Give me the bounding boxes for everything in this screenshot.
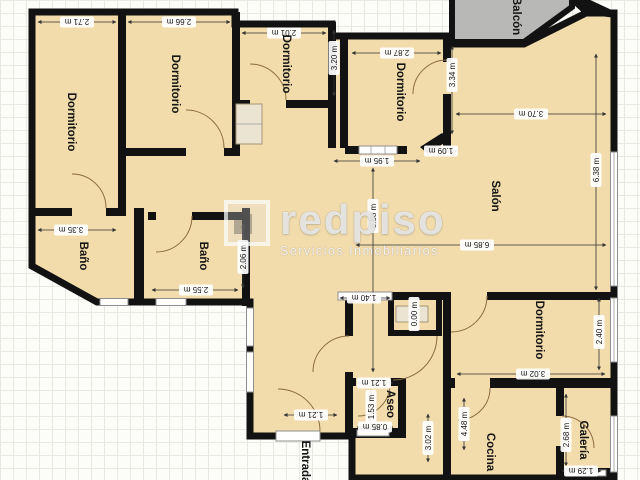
dimension-label: 1.21 m — [361, 378, 386, 387]
dimension-label: 1.40 m — [351, 293, 376, 302]
room-label-bathroom-1: Baño — [77, 242, 89, 271]
dimension-label: 2.71 m — [64, 17, 89, 26]
dimension-label: 0.00 m — [410, 301, 419, 326]
dimension-label: 2.40 m — [595, 319, 604, 344]
dimension-label: 2.66 m — [166, 17, 191, 26]
dimension-label: 6.38 m — [592, 157, 601, 182]
dimension-label: 1.09 m — [428, 146, 453, 155]
dimension-label: 6.85 m — [464, 240, 489, 249]
dimension-label: 1.21 m — [298, 410, 323, 419]
dimension-label: 3.70 m — [518, 109, 543, 118]
dimension-label: 2.06 m — [239, 244, 248, 269]
room-label-gallery: Galería — [577, 421, 589, 461]
dimension-label: 4.48 m — [460, 411, 469, 436]
dimension-label: 1.53 m — [367, 394, 376, 419]
dimension-label: 3.02 m — [520, 369, 545, 378]
room-label-living-room: Salón — [489, 180, 501, 211]
floor-plan-canvas: 2.71 m 2.66 m 2.01 m 3.20 m 2.87 m 3.34 … — [0, 0, 640, 480]
dimension-label: 3.20 m — [330, 45, 339, 70]
room-label-bedroom-3: Dormitorio — [280, 35, 292, 94]
dimension-label: 1.95 m — [364, 156, 389, 165]
dimension-label: 2.55 m — [183, 285, 208, 294]
floor-plan-svg: 2.71 m 2.66 m 2.01 m 3.20 m 2.87 m 3.34 … — [0, 0, 640, 480]
dimension-label: 6.88 m — [369, 203, 378, 228]
room-label-bedroom-2: Dormitorio — [169, 55, 181, 114]
room-label-kitchen: Cocina — [484, 433, 496, 472]
room-label-entrance: Entrada — [299, 441, 311, 480]
room-label-bedroom-5: Dormitorio — [533, 301, 545, 360]
dimension-label: 1.29 m — [568, 466, 593, 475]
room-label-toilet: Aseo — [384, 390, 396, 418]
dimension-label: 3.34 m — [448, 62, 457, 87]
room-label-bathroom-2: Baño — [197, 242, 209, 271]
dimension-label: 0.85 m — [362, 422, 387, 431]
dimension-label: 3.35 m — [58, 225, 83, 234]
dimension-label: 2.68 m — [562, 422, 571, 447]
room-label-balcony: Balcón — [510, 0, 522, 35]
dimension-label: 3.02 m — [424, 425, 433, 450]
room-label-bedroom-4: Dormitorio — [394, 63, 406, 122]
room-label-bedroom-1: Dormitorio — [65, 93, 77, 152]
dimension-label: 2.87 m — [384, 48, 409, 57]
